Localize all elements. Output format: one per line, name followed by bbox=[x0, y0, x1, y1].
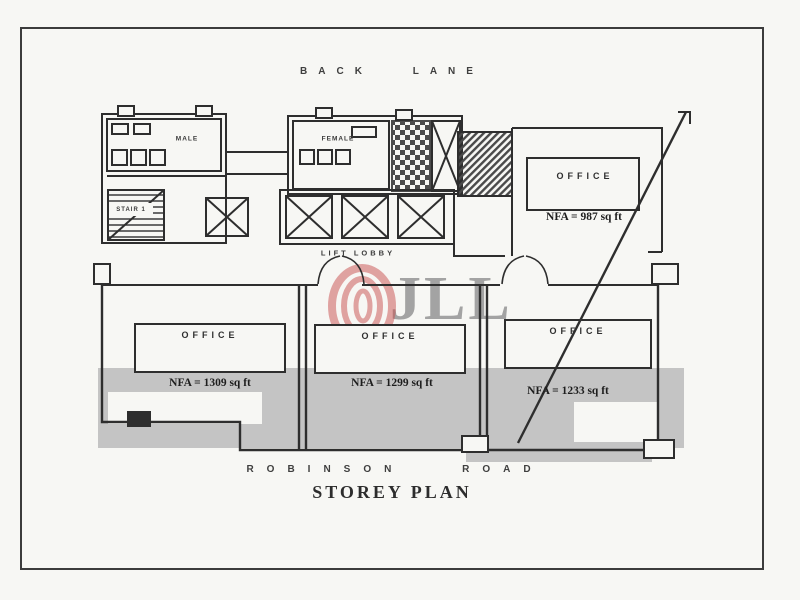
office-top-right-walls bbox=[512, 112, 690, 256]
stair-hatch-icon bbox=[108, 190, 164, 240]
nfa-label-bottom-right: NFA = 1233 sq ft bbox=[527, 385, 609, 397]
office-label-bottom-left: OFFICE bbox=[182, 330, 239, 340]
elevator-x-icon bbox=[342, 196, 388, 238]
elevator-bank bbox=[280, 190, 454, 244]
office-label-top-right: OFFICE bbox=[557, 171, 614, 181]
street-label-robinson-road: ROBINSON ROAD bbox=[246, 464, 543, 475]
elevator-x-icon bbox=[286, 196, 332, 238]
door-swing-icon bbox=[502, 256, 548, 284]
stair2-x-icon bbox=[432, 121, 460, 191]
office-label-bottom-middle: OFFICE bbox=[362, 331, 419, 341]
nfa-label-top-right: NFA = 987 sq ft bbox=[546, 211, 622, 223]
street-label-back-lane: BACK LANE bbox=[300, 66, 484, 77]
nfa-label-bottom-left: NFA = 1309 sq ft bbox=[169, 377, 251, 389]
office-label-bottom-right: OFFICE bbox=[550, 326, 607, 336]
room-label-male: MALE bbox=[176, 136, 198, 143]
corridor-walls bbox=[226, 152, 288, 174]
room-label-female: FEMALE bbox=[322, 136, 355, 143]
elevator-x-icon bbox=[398, 196, 444, 238]
nfa-label-bottom-middle: NFA = 1299 sq ft bbox=[351, 377, 433, 389]
room-label-stair1: STAIR 1 bbox=[116, 207, 146, 213]
plan-title: STOREY PLAN bbox=[312, 482, 472, 503]
services-shaft-hatch bbox=[392, 121, 430, 191]
floorplan-linework bbox=[0, 0, 800, 600]
scanned-floorplan-page: JLL bbox=[0, 0, 800, 600]
stair-core-hatch bbox=[458, 132, 512, 196]
room-label-lift-lobby: LIFT LOBBY bbox=[321, 249, 395, 258]
